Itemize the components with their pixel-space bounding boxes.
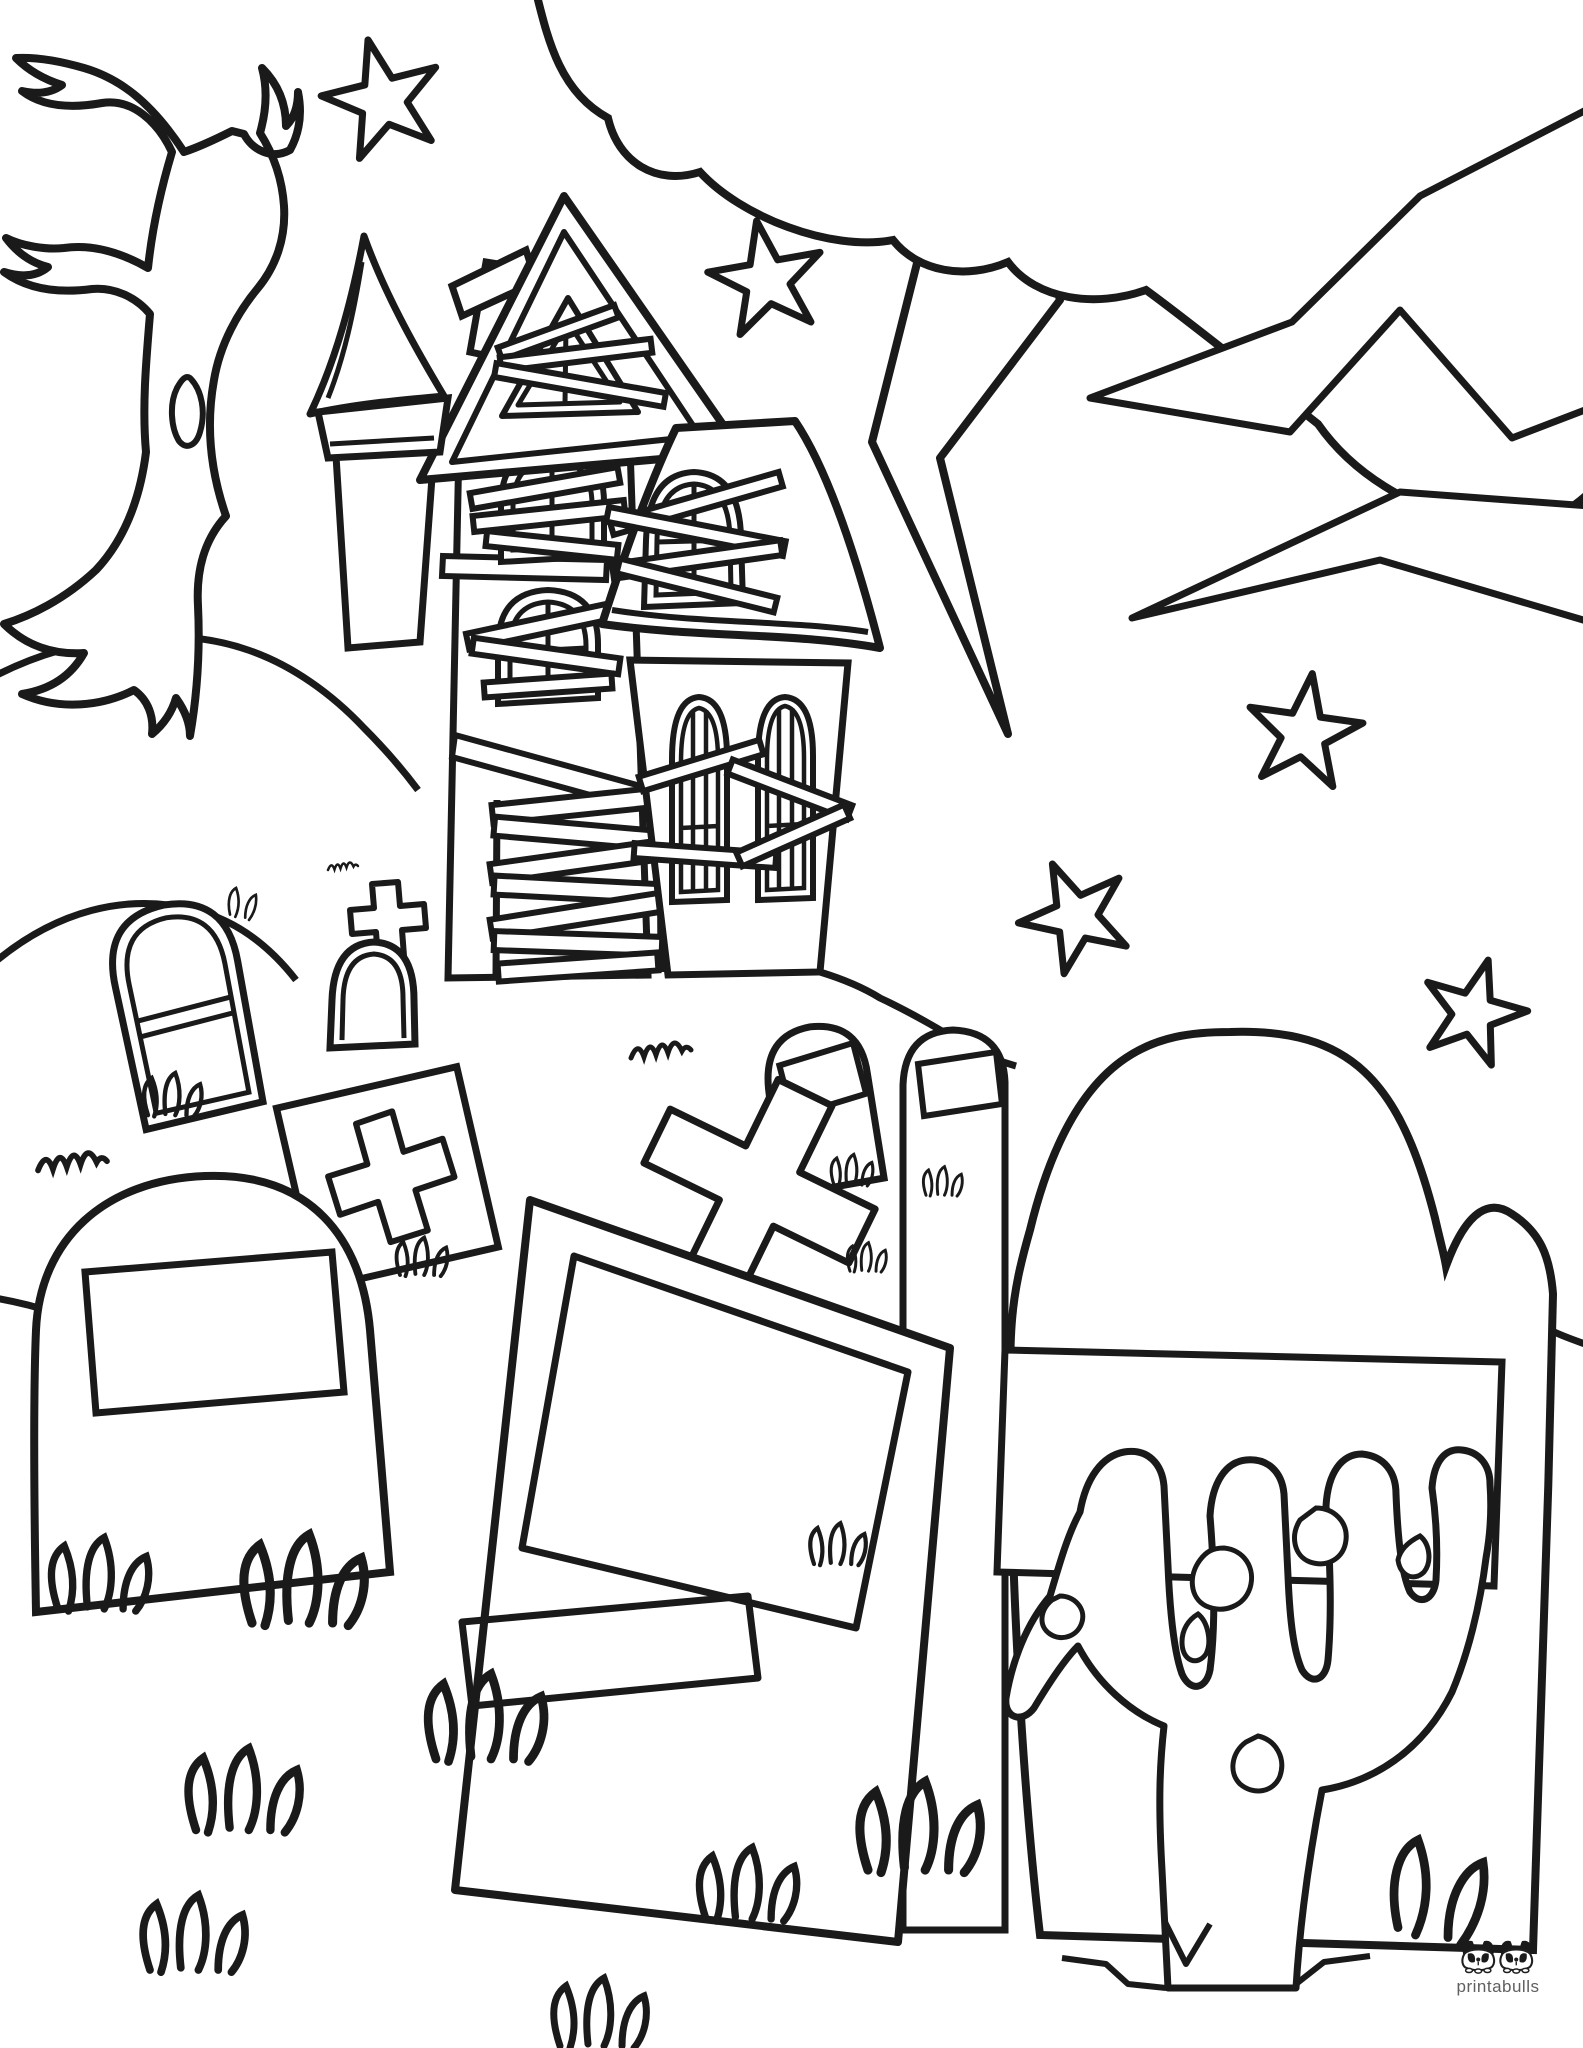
gravestone-outline [455,1200,950,1942]
rot-patch [1192,1548,1251,1609]
rot-patch [1233,1736,1282,1791]
crack-line [1062,1958,1166,1988]
grass-tuft [189,1748,300,1832]
grass-tuft [143,1895,245,1972]
spooky-bare-tree [4,58,300,736]
star-icon [1002,842,1145,983]
grass-tuft [554,1978,647,2048]
hill-line-far [0,636,418,790]
rot-patch [1042,1596,1083,1638]
cross-top-gravestone [330,882,426,1048]
steeple [310,236,448,458]
grass-tuft [229,888,256,920]
halloween-graveyard-scene: printabulls [0,0,1583,2048]
coloring-page: printabulls [0,0,1583,2048]
crack-line [1296,1956,1370,1984]
steeple-cap [318,398,448,458]
gravestone-plaque [918,1052,1002,1116]
tree-hole [172,377,203,446]
grass-squiggle [631,1043,691,1058]
tree-outline [4,58,300,736]
gravestone-plaque [85,1252,344,1413]
big-left-gravestone [34,1176,390,1612]
star-icon [1411,946,1539,1071]
grass-squiggle [38,1153,107,1170]
rot-patch [1295,1508,1347,1564]
star-icon [1241,666,1369,790]
grass-squiggle [328,862,358,870]
watermark-text: printabulls [1457,1977,1540,1996]
star-icon [311,26,453,164]
large-tilted-gravestone [455,1200,950,1942]
lightning-bolt-lower-right [1132,492,1583,622]
